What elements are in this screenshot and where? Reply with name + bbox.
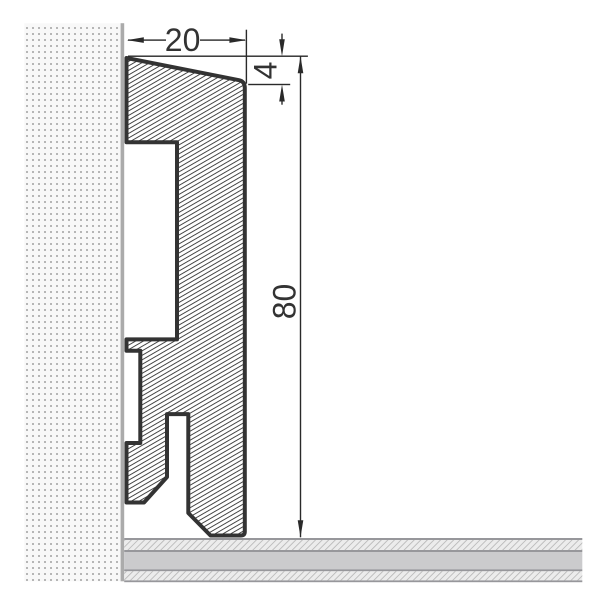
svg-text:4: 4 xyxy=(247,62,283,80)
svg-text:80: 80 xyxy=(267,284,303,320)
svg-text:20: 20 xyxy=(165,22,201,58)
